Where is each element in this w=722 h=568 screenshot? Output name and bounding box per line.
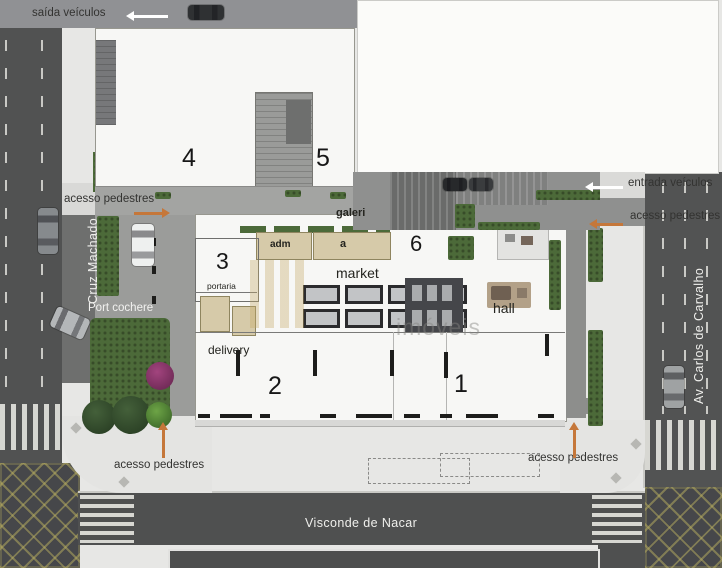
portaria-label: portaria <box>207 281 236 291</box>
adm-label: adm <box>270 239 291 250</box>
delivery-label: delivery <box>208 343 249 357</box>
facade-wall <box>260 414 270 418</box>
car <box>443 178 467 191</box>
exit-vehicles-label: saída veículos <box>32 7 106 19</box>
junction-box-right <box>645 487 722 568</box>
car <box>132 224 154 266</box>
wall-stub <box>444 352 448 378</box>
service-core <box>286 100 311 144</box>
street-name-visconde-de-nacar: Visconde de Nacar <box>305 516 417 530</box>
junction-box-left <box>0 463 80 568</box>
street-name-av-carlos-de-carvalho: Av. Carlos de Carvalho <box>692 258 706 404</box>
arrow-shaft <box>134 212 162 215</box>
lounge-table <box>505 234 515 242</box>
planter <box>478 222 540 230</box>
car <box>188 5 224 20</box>
unit-a-label: a <box>340 238 346 250</box>
pedestrian-access-arrow-southwest <box>158 422 168 458</box>
facade-wall <box>538 414 554 418</box>
elevator-cab <box>442 285 452 301</box>
lane-marking <box>5 40 7 396</box>
arrow-shaft <box>162 430 165 458</box>
wall-stub <box>313 350 317 376</box>
shelf-unit <box>303 309 340 328</box>
entry-walkway <box>566 228 586 418</box>
facade-wall <box>198 414 210 418</box>
facade-wall <box>356 414 392 418</box>
galeria-label: galeri <box>336 207 365 219</box>
arrow-shaft <box>597 223 623 226</box>
planter <box>455 204 475 228</box>
room-3-label: 3 <box>216 248 229 275</box>
wall-stub <box>390 350 394 376</box>
tree <box>82 400 116 434</box>
portaria-desk <box>200 296 230 332</box>
entrance-vehicles-label: entrada veículos <box>628 177 712 189</box>
planter <box>448 236 474 260</box>
facade-wall <box>466 414 498 418</box>
car <box>664 366 684 408</box>
room-6-label: 6 <box>410 231 422 257</box>
shelf-unit <box>345 285 382 304</box>
room-2-label: 2 <box>268 372 282 401</box>
hall-label: hall <box>493 300 515 316</box>
arrow-head-icon <box>585 182 593 192</box>
crosswalk-left-road <box>0 404 62 450</box>
arrow-head-icon <box>126 11 134 21</box>
side-stair <box>96 40 116 125</box>
site-plan: imóveis saída veículos entrada veículos … <box>0 0 722 568</box>
facade-wall <box>404 414 420 418</box>
crosswalk-bottom-road-right <box>592 495 642 543</box>
facade-wall <box>320 414 336 418</box>
pedestrian-access-label-southwest: acesso pedestres <box>114 459 204 471</box>
neighbor-building-south <box>168 549 600 568</box>
car <box>38 208 58 254</box>
wall-line <box>393 332 394 420</box>
elevator-cab <box>427 310 437 326</box>
market-label: market <box>336 265 379 281</box>
pedestrian-access-arrow-southeast <box>569 422 579 458</box>
neighbor-building-northeast <box>357 0 719 174</box>
lounge-chair <box>521 236 533 245</box>
pedestrian-access-arrow-left <box>134 208 170 218</box>
pedestrian-access-arrow-right <box>589 219 623 229</box>
pedestrian-access-label-left: acesso pedestres <box>64 193 154 205</box>
elevator-cab <box>412 285 422 301</box>
arrow-head-icon <box>158 422 168 430</box>
planter <box>330 192 346 199</box>
arrow-head-icon <box>569 422 579 430</box>
elevator-cab <box>427 285 437 301</box>
tree <box>112 396 150 434</box>
entrance-vehicles-arrow <box>585 182 623 192</box>
hedge <box>97 216 119 296</box>
street-name-cruz-machado: Cruz Machado <box>86 206 100 304</box>
hedge <box>588 330 603 426</box>
arrow-shaft <box>593 186 623 189</box>
shelf-unit <box>345 309 382 328</box>
hall-table <box>517 288 527 298</box>
arrow-head-icon <box>162 208 170 218</box>
wall-line <box>195 332 565 333</box>
room-4-label: 4 <box>182 144 196 173</box>
elevator-cab <box>412 310 422 326</box>
car <box>469 178 493 191</box>
green-wall <box>549 240 561 310</box>
arrow-shaft <box>573 430 576 458</box>
planter <box>285 190 301 197</box>
shelf-unit <box>303 285 340 304</box>
wall-line <box>195 292 257 293</box>
arrow-shaft <box>134 15 168 18</box>
wall-stub <box>545 334 549 356</box>
hedge <box>588 228 603 282</box>
exit-vehicles-arrow <box>126 11 168 21</box>
arrow-head-icon <box>589 219 597 229</box>
shop-a <box>313 232 391 260</box>
room-1-label: 1 <box>454 370 468 399</box>
flowering-tree <box>146 362 174 390</box>
canopy-edge <box>195 420 565 427</box>
bollard <box>152 266 156 274</box>
planter <box>155 192 171 199</box>
hall-sofa <box>491 286 511 300</box>
elevator-cab <box>442 310 452 326</box>
crosswalk-right-road <box>645 420 722 470</box>
facade-wall <box>220 414 252 418</box>
pedestrian-access-label-right: acesso pedestres <box>630 210 720 222</box>
projection-outline <box>440 453 540 477</box>
room-5-label: 5 <box>316 144 330 173</box>
crosswalk-bottom-road-left <box>80 495 134 543</box>
facade-wall <box>440 414 452 418</box>
